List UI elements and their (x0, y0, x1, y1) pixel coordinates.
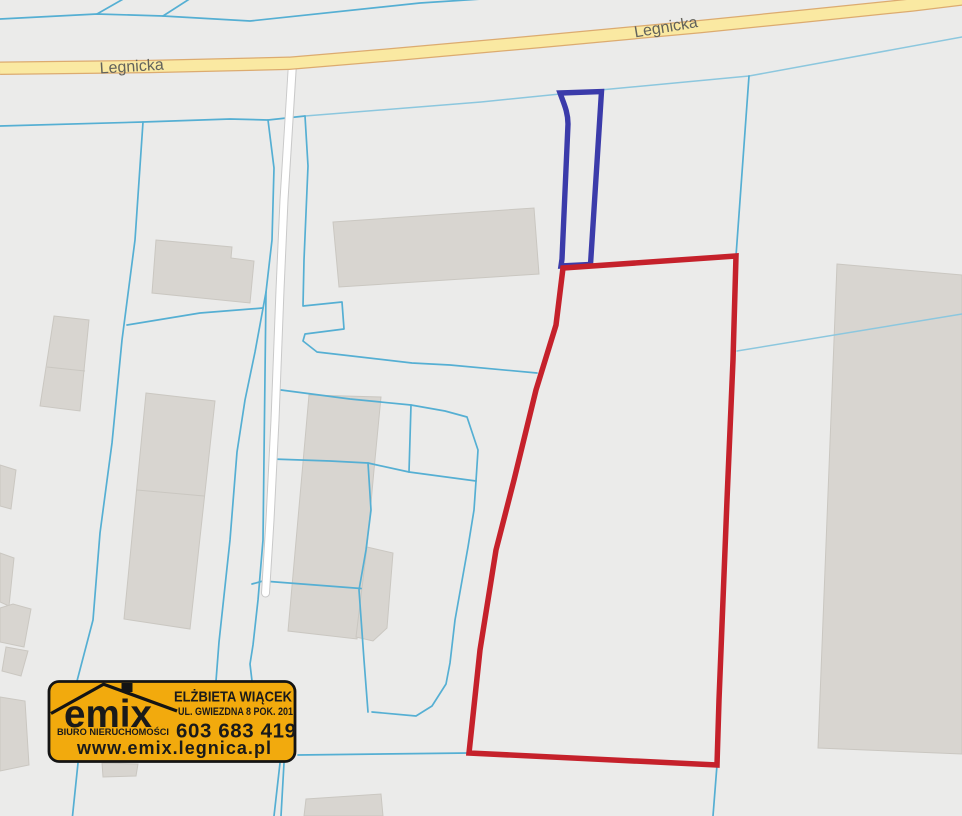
svg-text:ELŻBIETA WIĄCEK: ELŻBIETA WIĄCEK (174, 689, 292, 706)
svg-text:BIURO NIERUCHOMOŚCI: BIURO NIERUCHOMOŚCI (57, 726, 169, 738)
svg-text:UL. GWIEZDNA 8 POK. 201: UL. GWIEZDNA 8 POK. 201 (178, 706, 293, 718)
svg-text:www.emix.legnica.pl: www.emix.legnica.pl (76, 738, 271, 758)
